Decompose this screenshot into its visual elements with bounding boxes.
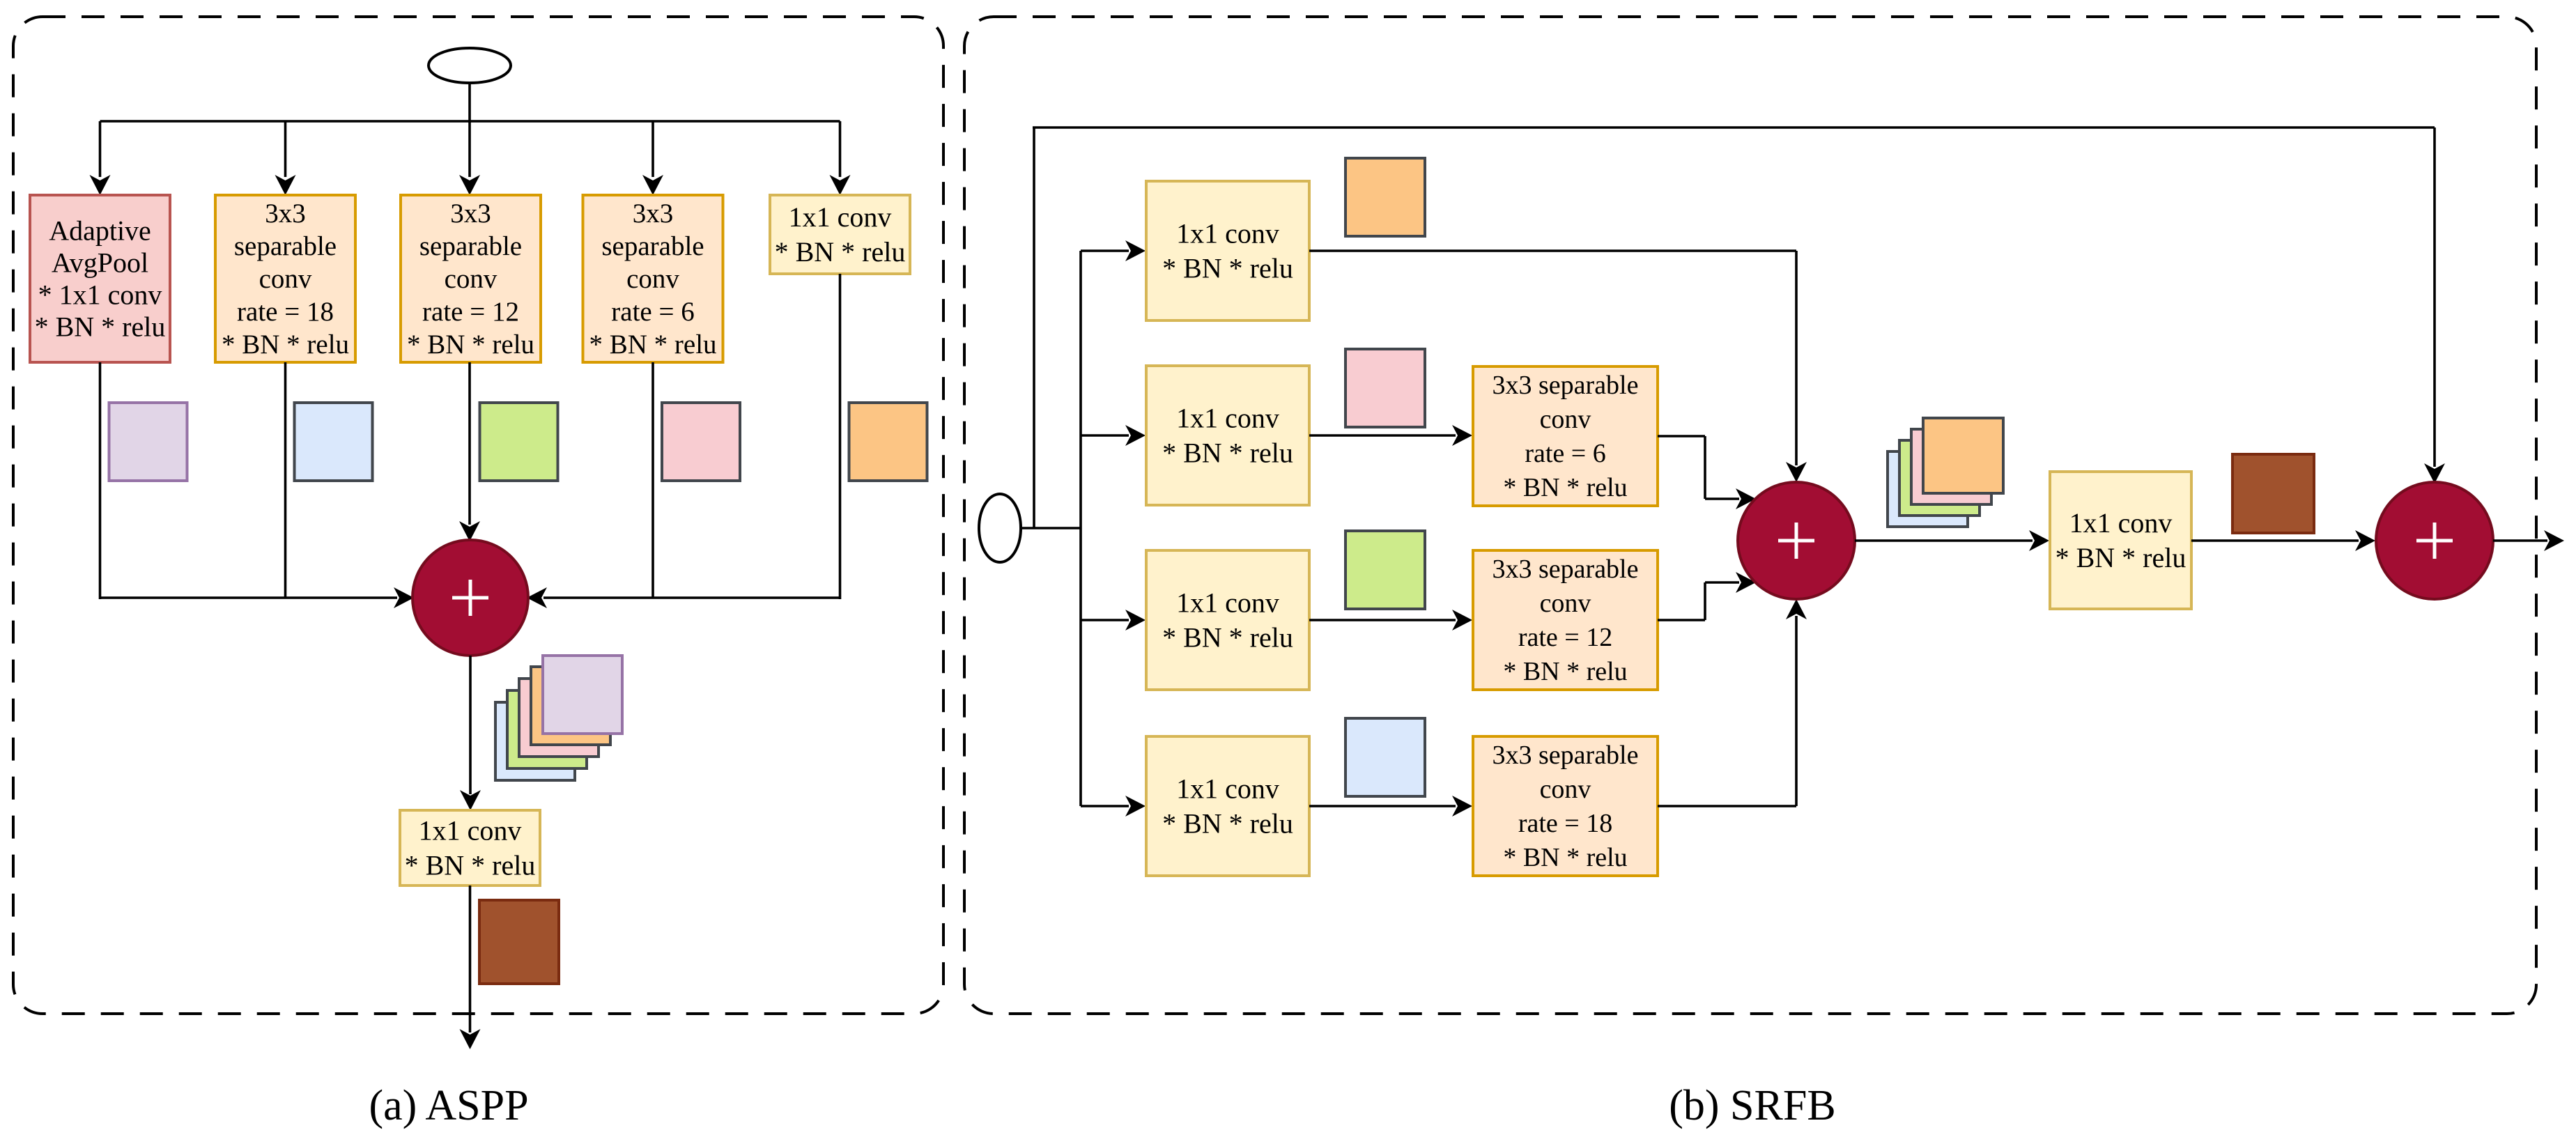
svg-text:* BN * relu: * BN * relu [222, 330, 349, 359]
svg-text:conv: conv [1540, 775, 1591, 804]
svg-text:3x3: 3x3 [633, 199, 674, 229]
svg-text:rate = 18: rate = 18 [1518, 809, 1612, 838]
svg-text:* BN * relu: * BN * relu [1162, 437, 1293, 468]
svg-text:conv: conv [1540, 405, 1591, 434]
svg-text:1x1 conv: 1x1 conv [789, 201, 892, 233]
svg-text:* BN * relu: * BN * relu [1162, 621, 1293, 653]
svg-text:* BN * relu: * BN * relu [1162, 807, 1293, 839]
svg-text:conv: conv [445, 264, 498, 294]
svg-text:* BN * relu: * BN * relu [1162, 252, 1293, 284]
svg-text:* BN * relu: * BN * relu [1503, 843, 1627, 872]
svg-text:rate = 6: rate = 6 [1525, 439, 1605, 468]
svg-text:rate = 18: rate = 18 [237, 297, 334, 327]
svg-text:separable: separable [234, 231, 337, 261]
svg-text:conv: conv [259, 264, 312, 294]
svg-text:conv: conv [1540, 589, 1591, 618]
svg-text:* BN * relu: * BN * relu [407, 330, 534, 359]
svg-text:1x1 conv: 1x1 conv [2069, 507, 2173, 539]
svg-text:* BN * relu: * BN * relu [1503, 473, 1627, 502]
svg-text:* BN * relu: * BN * relu [2056, 542, 2186, 573]
svg-text:Adaptive: Adaptive [49, 215, 151, 246]
svg-text:* BN * relu: * BN * relu [775, 236, 906, 268]
svg-text:separable: separable [419, 231, 522, 261]
svg-text:1x1 conv: 1x1 conv [1176, 402, 1279, 433]
svg-text:3x3 separable: 3x3 separable [1493, 741, 1639, 770]
svg-text:* 1x1 conv: * 1x1 conv [38, 279, 162, 310]
svg-text:(a) ASPP: (a) ASPP [369, 1082, 528, 1129]
svg-text:* BN * relu: * BN * relu [1503, 657, 1627, 686]
svg-text:AvgPool: AvgPool [52, 247, 148, 278]
svg-text:3x3 separable: 3x3 separable [1493, 371, 1639, 400]
svg-text:1x1 conv: 1x1 conv [419, 814, 522, 846]
svg-text:rate = 12: rate = 12 [422, 297, 519, 327]
svg-text:separable: separable [601, 231, 704, 261]
svg-text:rate = 6: rate = 6 [611, 297, 694, 327]
svg-text:rate = 12: rate = 12 [1518, 623, 1612, 652]
svg-text:(b) SRFB: (b) SRFB [1669, 1082, 1835, 1129]
svg-text:3x3: 3x3 [450, 199, 491, 229]
svg-text:1x1 conv: 1x1 conv [1176, 587, 1279, 618]
svg-text:3x3 separable: 3x3 separable [1493, 555, 1639, 584]
svg-text:3x3: 3x3 [265, 199, 306, 229]
svg-text:* BN * relu: * BN * relu [405, 849, 536, 881]
svg-text:1x1 conv: 1x1 conv [1176, 217, 1279, 249]
svg-text:1x1 conv: 1x1 conv [1176, 773, 1279, 804]
svg-text:* BN * relu: * BN * relu [35, 311, 166, 342]
svg-text:* BN * relu: * BN * relu [589, 330, 716, 359]
svg-text:conv: conv [626, 264, 679, 294]
